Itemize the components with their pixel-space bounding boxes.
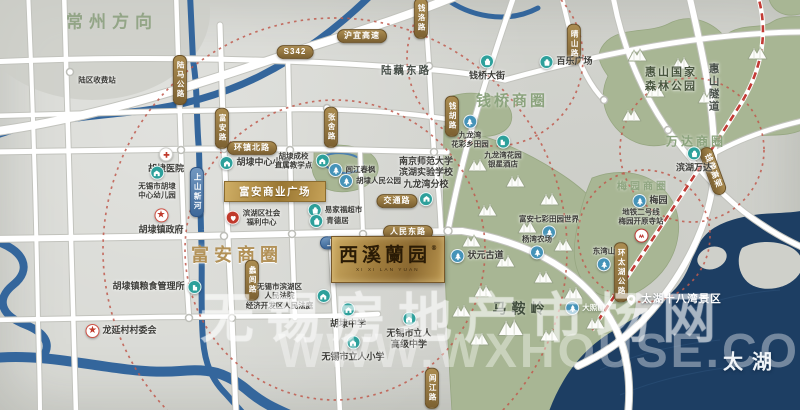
map-poi: 无锡市立人高级中学	[386, 312, 431, 351]
road-name-pill: 闾江路	[425, 368, 439, 409]
poi-label: 胡埭镇政府	[138, 224, 183, 235]
project-location-map: 常州方向 太湖 钱桥商圈万达商圈梅园商圈富安商圈S342沪宜高速环镇北路人民东路…	[0, 0, 800, 410]
tree-icon	[597, 258, 611, 272]
poi-label: 地铁二号线梅园开原寺站	[619, 208, 664, 227]
tree-icon	[530, 246, 544, 260]
school-icon	[402, 312, 416, 326]
poi-label: 百乐广场	[556, 56, 592, 67]
road-name-pill: 陆马公路	[173, 55, 187, 105]
tree-icon	[565, 301, 579, 315]
business-circle-label: 富安商圈	[191, 241, 283, 267]
poi-label: 太湖十八湾景区	[641, 293, 722, 306]
metro-icon	[634, 228, 648, 242]
poi-label: 胡埭成校直属教学点	[275, 152, 313, 171]
poi-label: 钱桥大街	[469, 70, 505, 81]
map-poi: ★胡埭镇政府	[138, 208, 183, 235]
map-poi: 滨湖万达	[676, 146, 712, 173]
map-poi: 滨湖区社会福利中心	[226, 209, 281, 228]
business-circle-label: 梅园商圈	[617, 178, 669, 193]
road-name-pill: S342	[277, 45, 314, 59]
map-poi: 东湾山	[593, 246, 616, 271]
gov-icon: ★	[154, 208, 168, 222]
shop-icon	[687, 146, 701, 160]
poi-label: 龙延村村委会	[102, 325, 156, 336]
gov-icon: ★	[85, 324, 99, 338]
fuan-plaza-banner: 富安商业广场	[224, 181, 326, 202]
map-poi: 杨湾农场	[522, 234, 552, 259]
map-poi: 无锡市滨湖区人民法院经济开发区人民法庭	[246, 282, 331, 310]
poi-label: 梅园	[649, 195, 667, 206]
tree-icon	[632, 194, 646, 208]
changzhou-direction-label: 常州方向	[66, 8, 158, 33]
map-poi: 大照山	[565, 301, 605, 315]
map-poi: 惠山国家森林公园	[645, 66, 697, 94]
poi-label: 大照山	[582, 303, 605, 312]
school-icon	[341, 302, 355, 316]
map-poi: 太湖十八湾景区	[624, 293, 722, 307]
poi-label: 无锡市胡埭中心幼儿园	[138, 182, 176, 201]
map-poi: 胡埭成校直属教学点	[275, 152, 330, 171]
map-poi: 钱桥大街	[469, 54, 505, 81]
road-name-pill: 环镇北路	[227, 141, 277, 155]
map-poi: 地铁二号线梅园开原寺站	[619, 208, 664, 243]
map-poi: 九龙湾花彩乡田园	[451, 115, 489, 150]
map-poi: 百乐广场	[539, 55, 592, 69]
map-poi: 九龙湾花园银星酒店	[484, 135, 522, 170]
school-icon	[219, 156, 233, 170]
court-icon	[316, 289, 330, 303]
poi-label: 胡埭人民公园	[356, 176, 401, 185]
building-icon	[188, 280, 202, 294]
poi-label: 无锡市立人高级中学	[386, 328, 431, 351]
map-poi: 胡埭人民公园	[339, 174, 401, 188]
business-circle-label: 钱桥商圈	[476, 90, 548, 111]
road-name-pill: 沪宜高速	[337, 29, 387, 43]
poi-label: 马鞍岭	[493, 300, 550, 318]
poi-label: 胡埭中学	[330, 318, 366, 329]
poi-label: 无锡市立人小学	[321, 351, 384, 362]
poi-label: 无锡市滨湖区人民法院经济开发区人民法庭	[246, 282, 314, 310]
map-poi: 梅园	[632, 194, 667, 208]
taihu-lake-label: 太湖	[723, 346, 781, 375]
fuan-plaza-banner-label: 富安商业广场	[239, 184, 311, 199]
poi-label: 东湾山	[593, 246, 616, 255]
poi-label: 陆藕东路	[381, 64, 431, 77]
map-poi: 无锡市立人小学	[321, 335, 384, 362]
tree-icon	[339, 174, 353, 188]
poi-label: 九龙湾花彩乡田园	[451, 131, 489, 150]
map-poi: 陆藕东路	[381, 64, 431, 77]
tree-icon	[450, 249, 464, 263]
school-icon	[315, 154, 329, 168]
poi-label: 惠山隧道	[706, 63, 719, 113]
poi-label: 陆区收费站	[78, 75, 116, 84]
project-plaque: 西溪蘭园® XI XI LAN YUAN	[331, 236, 445, 283]
shop-icon	[309, 214, 323, 228]
project-name: 西溪蘭园®	[339, 246, 437, 265]
map-poi: 状元古道	[450, 249, 503, 263]
map-poi: 南京师范大学滨湖实验学校九龙湾分校	[399, 156, 453, 206]
poi-label: 惠山国家森林公园	[645, 66, 697, 94]
road-name-pill: 张舍路	[324, 107, 338, 148]
trademark-mark: ®	[431, 245, 437, 252]
school-icon	[346, 335, 360, 349]
shop-icon	[480, 54, 494, 68]
poi-label: 滨湖区社会福利中心	[243, 209, 281, 228]
poi-label: 九龙湾花园银星酒店	[484, 151, 522, 170]
pin-icon	[624, 293, 638, 307]
poi-label: 青德居	[326, 216, 349, 225]
poi-label: 南京师范大学滨湖实验学校九龙湾分校	[399, 156, 453, 190]
school-icon	[150, 166, 164, 180]
river-name-ribbon: 上山新河	[190, 167, 204, 217]
map-poi: 马鞍岭	[493, 300, 550, 318]
map-poi: ★龙延村村委会	[85, 324, 156, 338]
map-poi: 胡埭中学	[330, 302, 366, 329]
tree-icon	[463, 115, 477, 129]
road-name-pill: 钱洛路	[414, 0, 428, 38]
road-name-pill: 富安路	[215, 108, 229, 149]
poi-label: 滨湖万达	[676, 162, 712, 173]
shop-icon	[539, 55, 553, 69]
poi-label: 杨湾农场	[522, 234, 552, 243]
poi-label: 富安七彩田园世界	[519, 214, 579, 223]
map-poi: 青德居	[309, 214, 349, 228]
building-icon	[496, 135, 510, 149]
welfare-icon	[226, 211, 240, 225]
poi-label: 胡埭镇粮食管理所	[112, 281, 184, 292]
project-name-latin: XI XI LAN YUAN	[356, 268, 420, 273]
map-poi: 胡埭镇粮食管理所	[112, 280, 201, 294]
hospital-icon	[159, 147, 173, 161]
map-poi: 惠山隧道	[706, 63, 719, 113]
school-icon	[419, 192, 433, 206]
map-poi: 无锡市胡埭中心幼儿园	[138, 166, 176, 201]
map-poi: 陆区收费站	[78, 75, 116, 84]
poi-label: 状元古道	[467, 250, 503, 261]
